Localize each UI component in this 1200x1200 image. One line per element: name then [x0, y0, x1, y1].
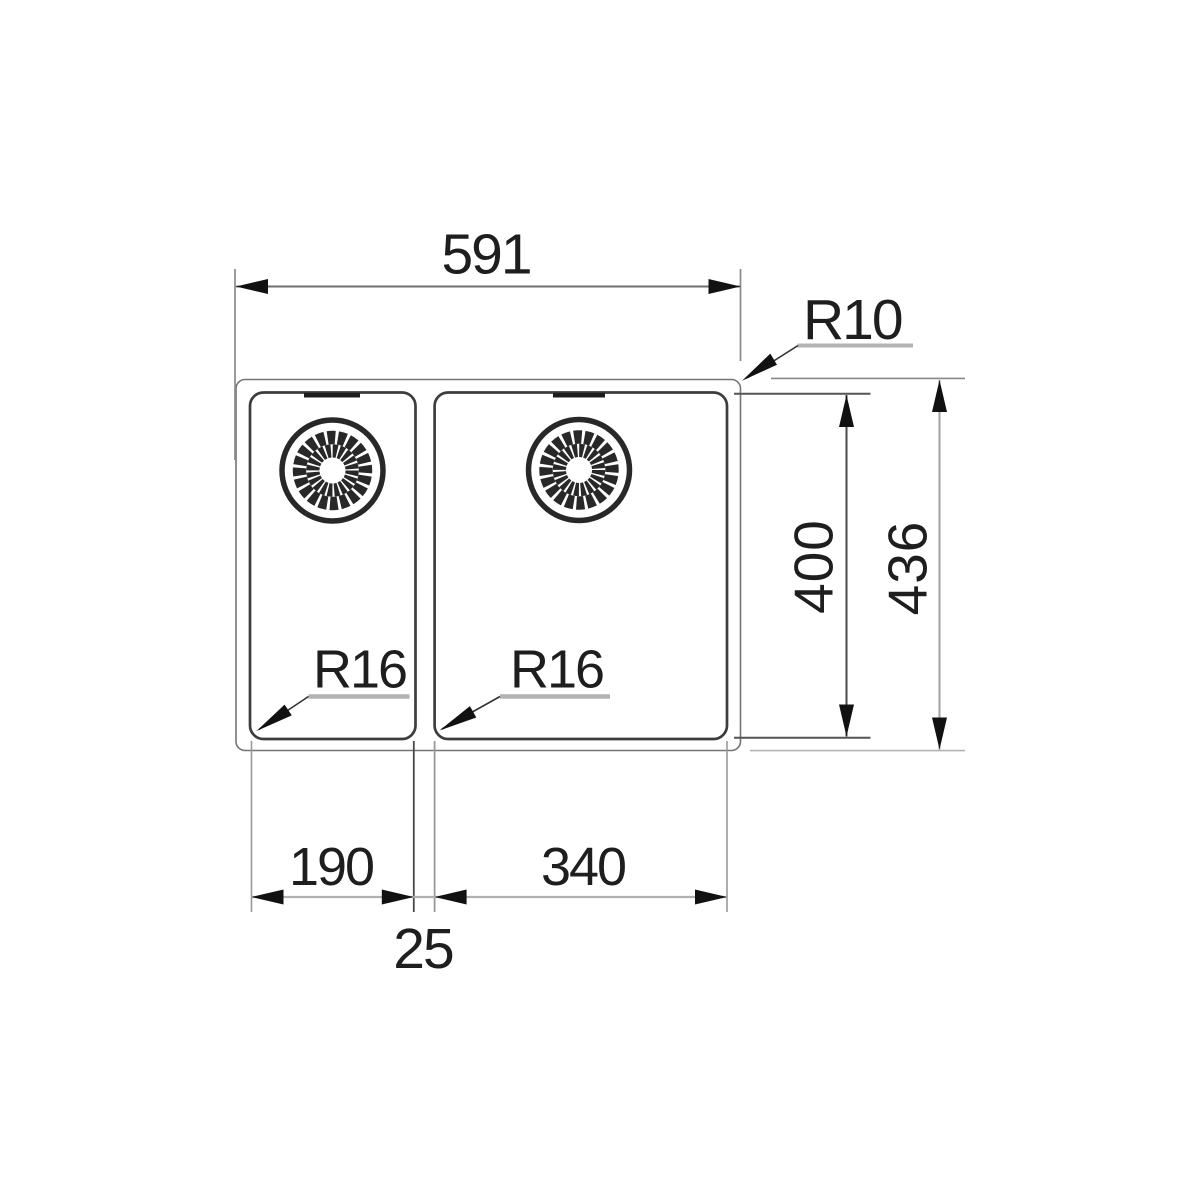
svg-text:25: 25 — [393, 917, 453, 981]
svg-text:400: 400 — [783, 519, 845, 614]
svg-text:R10: R10 — [803, 288, 902, 352]
svg-text:190: 190 — [289, 837, 373, 897]
svg-text:340: 340 — [541, 837, 625, 897]
svg-text:R16: R16 — [313, 640, 406, 700]
svg-text:R16: R16 — [510, 640, 603, 700]
svg-text:436: 436 — [877, 521, 939, 616]
svg-text:591: 591 — [441, 223, 530, 287]
